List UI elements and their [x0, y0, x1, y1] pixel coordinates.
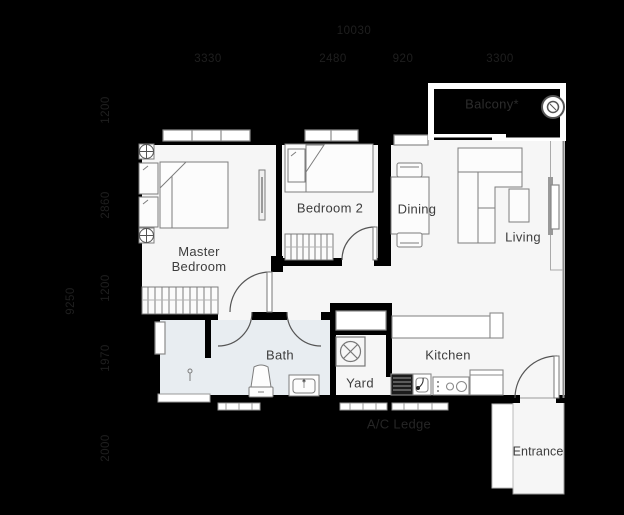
stove-icon — [433, 377, 469, 395]
entrance-side-wall — [492, 404, 513, 488]
bedroom2-window-icon — [305, 130, 358, 141]
room-label-dining: Dining — [398, 202, 437, 217]
shower-window-icon — [155, 322, 165, 354]
room-label-entrance: Entrance — [513, 445, 564, 460]
dim-left-4: 1970 — [100, 344, 112, 372]
balcony-drain-icon — [542, 96, 564, 118]
dim-top-4: 3300 — [486, 53, 514, 65]
dim-left-2: 2860 — [100, 191, 112, 219]
dining-window-icon — [394, 135, 428, 145]
dining-chair — [397, 163, 422, 177]
master-bedroom-window-icon — [163, 130, 250, 141]
column-marker-icon — [139, 228, 154, 243]
single-bed — [285, 144, 373, 192]
dim-top-3: 920 — [393, 53, 414, 65]
wardrobe — [285, 234, 333, 260]
room-label-balcony: Balcony* — [465, 97, 519, 112]
ledge-rail — [340, 403, 387, 410]
dim-left-1: 1200 — [100, 96, 112, 124]
washing-machine-icon — [336, 337, 365, 366]
room-label-yard: Yard — [346, 376, 374, 391]
balcony-structure — [428, 83, 566, 141]
floor-plan-drawing — [0, 0, 624, 515]
sink-vanity-icon — [289, 375, 319, 396]
wardrobe — [142, 287, 218, 314]
balcony-sliding-door — [432, 134, 506, 138]
dim-top-2: 2480 — [319, 53, 347, 65]
dining-chair — [397, 233, 422, 247]
dim-top-overall: 10030 — [337, 25, 371, 37]
room-label-bedroom2: Bedroom 2 — [297, 201, 363, 216]
dim-left-5: 2000 — [100, 434, 112, 462]
label-ac-ledge: A/C Ledge — [367, 417, 431, 432]
dim-top-1: 3330 — [194, 53, 222, 65]
coffee-table — [509, 189, 529, 222]
floor-plan-canvas: 10030 3330 2480 920 3300 9250 1200 2860 … — [0, 0, 624, 515]
living-window-icon — [548, 177, 559, 235]
dim-left-overall: 9250 — [65, 287, 77, 315]
yard-fixtures — [336, 337, 365, 366]
wall-mirror — [259, 170, 265, 220]
dim-left-3: 1200 — [100, 274, 112, 302]
kitchen-sink-icon — [391, 374, 431, 395]
room-label-master-bedroom: Master Bedroom — [161, 244, 237, 274]
yard-window-icon — [336, 311, 386, 330]
kitchen-counter — [392, 316, 490, 338]
kitchen-counter-right — [470, 370, 503, 395]
room-label-bath: Bath — [266, 348, 294, 363]
room-label-kitchen: Kitchen — [425, 348, 470, 363]
kitchen-appliance — [490, 313, 503, 338]
ledge-rail — [218, 403, 260, 410]
room-label-living: Living — [505, 230, 541, 245]
column-marker-icon — [139, 144, 154, 159]
ledge-rail — [392, 403, 448, 410]
balcony-sliding-door — [492, 138, 566, 142]
